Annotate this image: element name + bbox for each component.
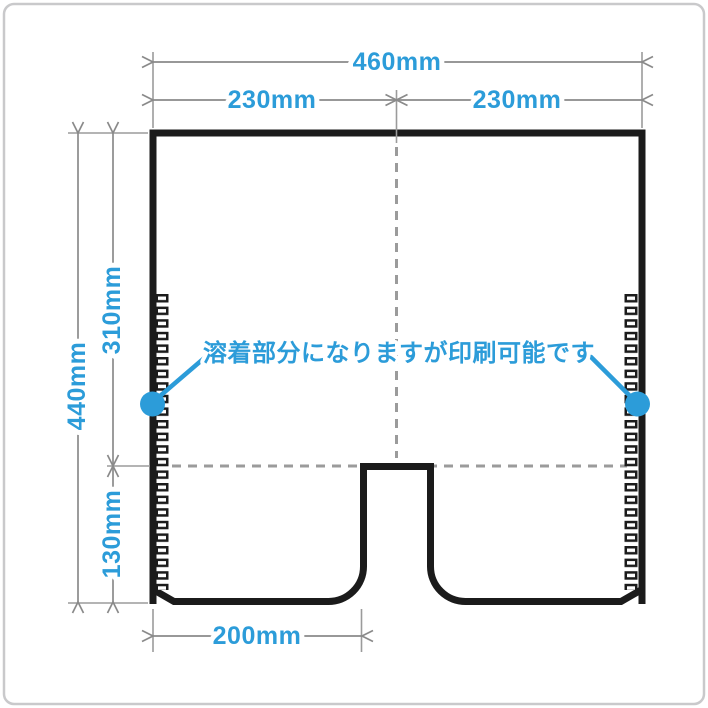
diagram-canvas: 460mm 230mm 230mm 440mm 310mm 130mm 200m…: [0, 0, 708, 708]
dimension-label-half-left: 230mm: [228, 86, 317, 114]
weld-serration-left: [156, 294, 169, 590]
dimension-label-upper-height: 310mm: [98, 266, 126, 355]
weld-point-marker-right: [625, 392, 650, 417]
dimension-label-total-width: 460mm: [353, 48, 442, 76]
weld-point-marker-left: [140, 392, 165, 417]
dimension-label-lower-height: 130mm: [98, 490, 126, 579]
dimension-label-bottom-width: 200mm: [213, 622, 302, 650]
bag-dimension-diagram: 460mm 230mm 230mm 440mm 310mm 130mm 200m…: [0, 0, 708, 708]
weld-annotation-text: 溶着部分になりますが印刷可能です: [203, 339, 595, 367]
dimension-label-total-height: 440mm: [63, 342, 91, 431]
weld-serration-right: [625, 294, 638, 590]
dimension-label-half-right: 230mm: [473, 86, 562, 114]
